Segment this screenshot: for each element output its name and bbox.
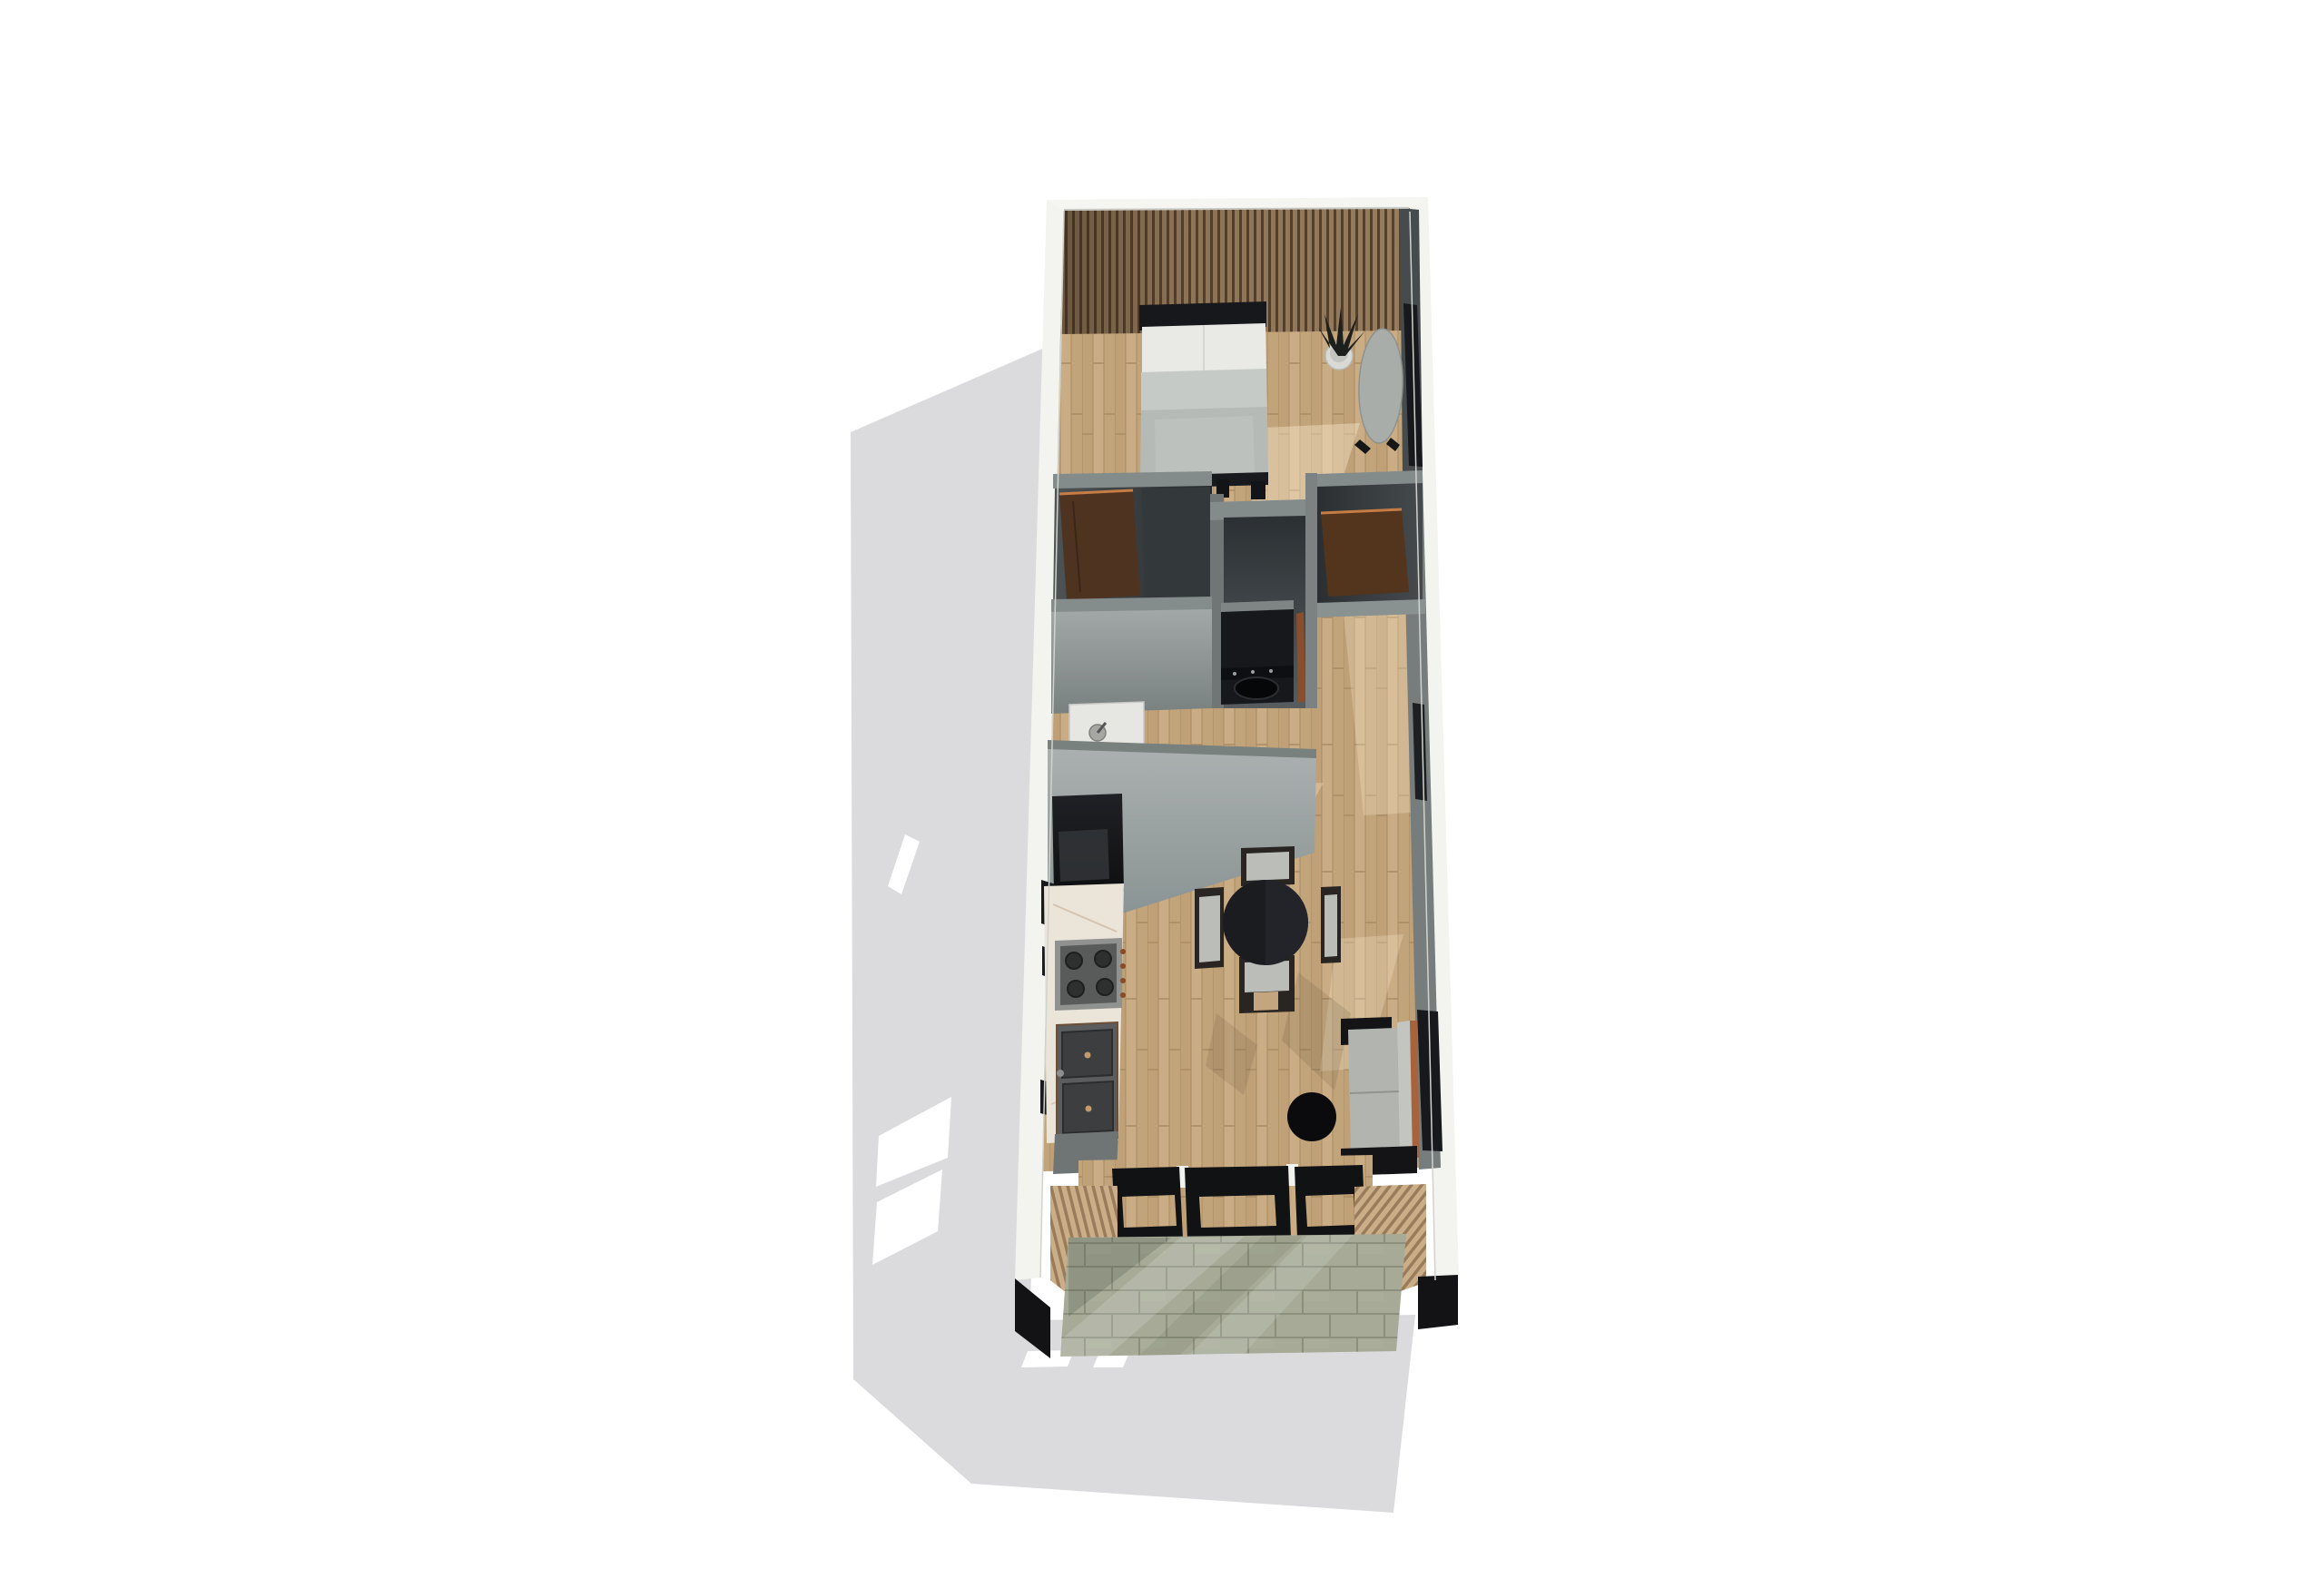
fridge-face-highlight — [1059, 829, 1109, 882]
bed-leg-right — [1251, 481, 1265, 499]
bed-blanket-fold — [1141, 369, 1267, 414]
patio-chair-right-opening — [1305, 1194, 1355, 1227]
washer-control-dot-2 — [1251, 670, 1255, 674]
burner-1 — [1066, 952, 1082, 969]
stove-knob-4 — [1120, 992, 1126, 998]
glass-door-center-opening — [1199, 1195, 1276, 1228]
burner-2 — [1095, 951, 1111, 967]
stove-knob-2 — [1120, 963, 1126, 969]
closet-left-back-panel — [1142, 487, 1210, 605]
plinth-black-right — [1418, 1275, 1458, 1329]
wall-niche-right — [1305, 473, 1317, 708]
sofa-backrest — [1397, 1021, 1413, 1159]
wall-cap-bedroom-left — [1053, 471, 1212, 489]
floor-plan-figure — [36, 15, 2324, 1564]
bath-north-wall-face — [1051, 609, 1212, 714]
dining-chair-bottom-leg-gap — [1254, 992, 1278, 1011]
stove-knob-3 — [1120, 978, 1126, 983]
burner-3 — [1068, 981, 1084, 997]
patio-chair-left-opening — [1122, 1195, 1177, 1228]
closet-left-door — [1059, 490, 1140, 600]
washer-control-dot-1 — [1233, 672, 1236, 676]
dining-chair-right-cushion — [1324, 894, 1337, 957]
sink-faucet — [1057, 1070, 1064, 1077]
burner-4 — [1097, 979, 1113, 995]
sink-drain-1 — [1085, 1052, 1091, 1059]
dining-chair-bottom-cushion — [1245, 961, 1289, 992]
washer-control-dot-3 — [1269, 669, 1273, 673]
floor-plan-3d-render — [36, 15, 2324, 1564]
dining-chair-left-cushion — [1199, 895, 1220, 962]
washer-door — [1235, 677, 1278, 699]
dining-chair-top-cushion — [1246, 852, 1289, 881]
sink-drain-2 — [1086, 1106, 1092, 1112]
closet-right-door — [1321, 509, 1409, 597]
floor-pouf — [1287, 1092, 1336, 1141]
bed-blanket-highlight — [1155, 416, 1255, 476]
shadow-light-sliver-2 — [1093, 1355, 1128, 1367]
stove-knob-1 — [1120, 949, 1126, 954]
